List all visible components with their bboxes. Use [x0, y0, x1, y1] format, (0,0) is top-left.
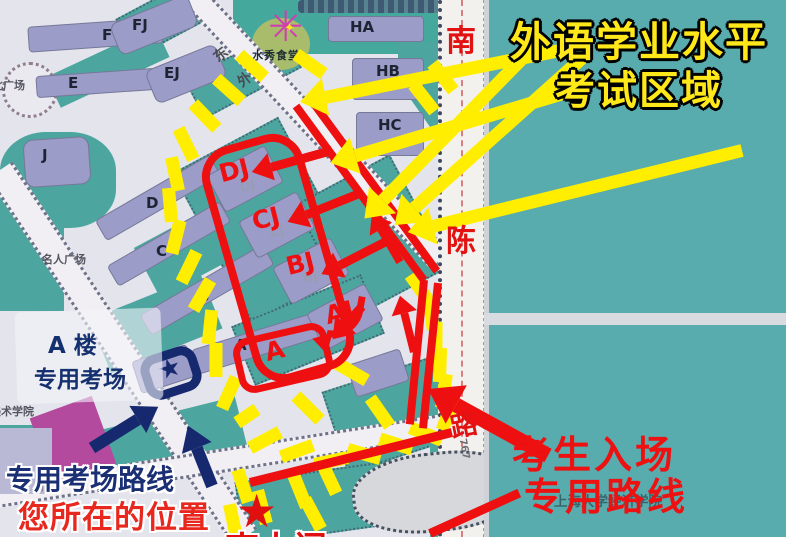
entry-route-label-line2: 专用路线	[524, 466, 688, 521]
building-label-e: E	[68, 76, 78, 91]
building-label-ha: HA	[350, 20, 374, 35]
your-location-label: 您所在的位置	[18, 492, 210, 537]
flower-center-icon: ✦	[284, 22, 295, 35]
building-label-hc: HC	[378, 118, 402, 133]
building-label-f: F	[102, 28, 112, 43]
building-label-j: J	[42, 148, 48, 163]
building-j	[22, 136, 91, 188]
building-label-fj: FJ	[132, 18, 148, 33]
exam-room-label-line1: A 楼	[48, 326, 97, 360]
route-dash	[291, 391, 324, 424]
route-dash	[202, 309, 218, 344]
page-title-line2: 考试区域	[492, 58, 786, 116]
exam-room-label-line2: 专用考场	[34, 360, 126, 394]
campus-map: F FJ E EJ J HA HB HC D C B A DJ CJ BJ AJ…	[0, 0, 786, 537]
building-label-d: D	[146, 196, 158, 211]
celebrity-plaza-label: 名人广场	[42, 254, 86, 265]
exam-label-bj: BJ	[283, 248, 317, 279]
building-ha	[328, 16, 424, 42]
art-college-label: 美术学院	[0, 406, 34, 417]
north-plaza-label: 北广场	[0, 80, 25, 91]
building-label-ej: EJ	[164, 66, 180, 81]
panel-divider	[484, 313, 786, 325]
route-dash	[210, 343, 223, 377]
exam-label-aj: AJ	[322, 297, 356, 328]
gate-label: 南大门	[225, 522, 327, 537]
road-name-chen: 陈	[446, 216, 476, 260]
exam-label-dj: DJ	[216, 155, 251, 187]
exam-label-cj: CJ	[249, 203, 282, 234]
road-name-nan: 南	[446, 16, 476, 60]
